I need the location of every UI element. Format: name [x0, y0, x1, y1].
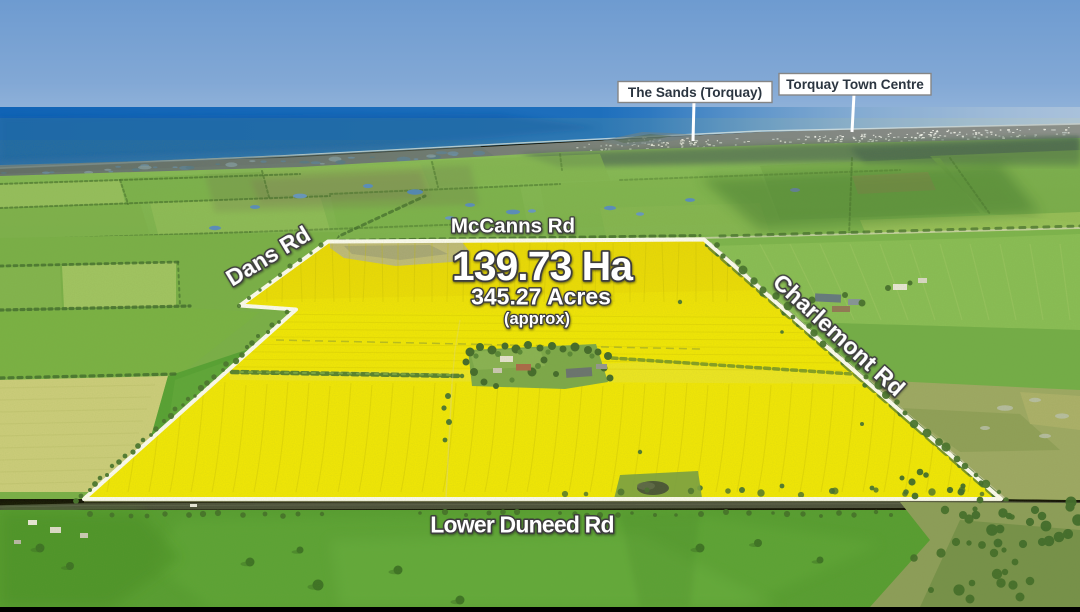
- svg-text:Lower Duneed Rd: Lower Duneed Rd: [430, 512, 614, 538]
- svg-text:The Sands (Torquay): The Sands (Torquay): [628, 85, 762, 100]
- svg-text:McCanns Rd: McCanns Rd: [451, 215, 575, 238]
- svg-text:Torquay Town Centre: Torquay Town Centre: [786, 77, 924, 92]
- svg-text:(approx): (approx): [504, 310, 570, 328]
- svg-text:139.73 Ha: 139.73 Ha: [452, 243, 634, 289]
- svg-text:345.27 Acres: 345.27 Acres: [471, 284, 611, 310]
